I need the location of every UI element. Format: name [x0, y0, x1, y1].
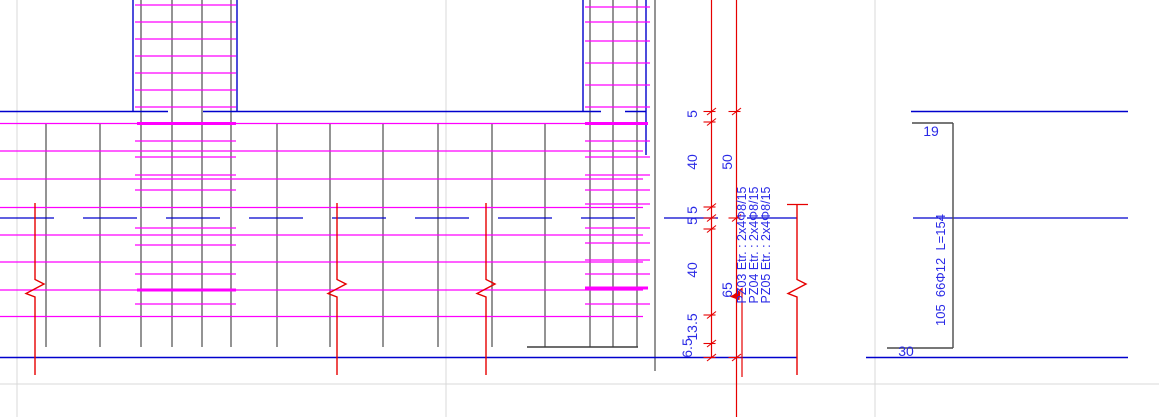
detail-top-dim: 19	[911, 124, 951, 138]
detail-bottom-dim: 30	[886, 344, 926, 358]
dim-label: 50	[720, 102, 734, 222]
dim-label: 6.5	[680, 288, 694, 408]
stirrup-label: PZ05 Etr. : 2x4Φ8/15	[759, 165, 773, 325]
cad-viewport[interactable]: 5 40 5 5 40 13.5 6.5 50 65 PZ03 Etr. : 2…	[0, 0, 1159, 417]
detail-bar-label: 105 66Φ12 L=154	[934, 190, 948, 350]
viewport-grid-lines	[0, 0, 1159, 417]
section-drawing	[0, 0, 1159, 417]
rebar-lines	[0, 5, 650, 317]
dim-label: 65	[720, 230, 734, 350]
